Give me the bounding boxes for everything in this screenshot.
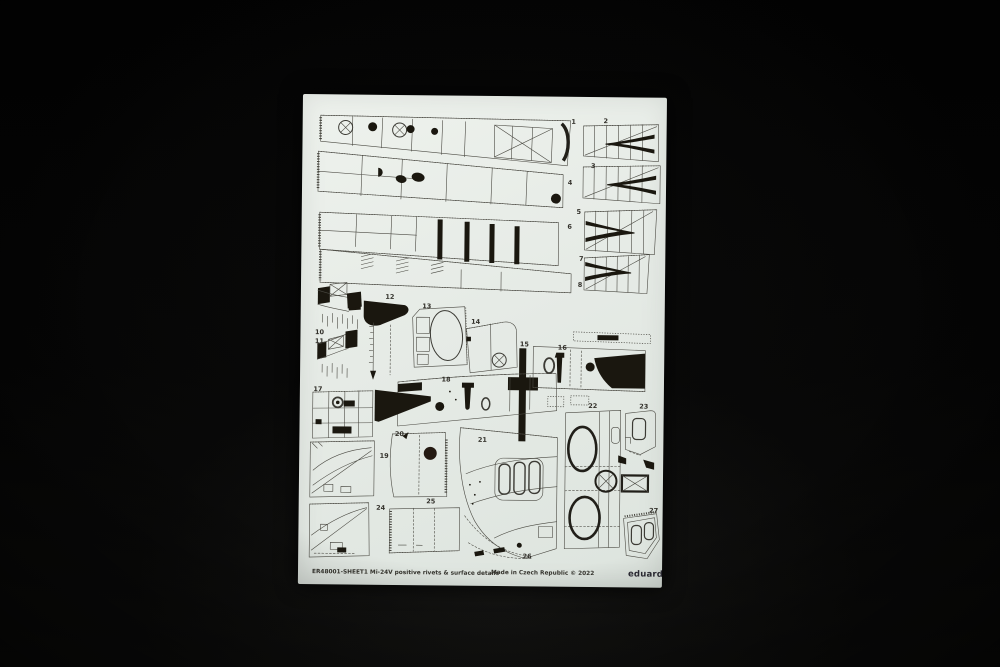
part-number: 5 xyxy=(576,208,581,216)
part-7-drawing xyxy=(584,254,649,294)
part-number: 19 xyxy=(380,452,390,460)
part-number: 21 xyxy=(478,436,488,444)
part-number: 18 xyxy=(441,375,451,383)
part-number: 20 xyxy=(395,430,405,438)
part-16-drawing xyxy=(533,331,651,391)
part-8-drawing xyxy=(320,249,571,293)
part-number: 17 xyxy=(313,385,322,393)
part-number: 14 xyxy=(471,318,481,326)
sheet-artwork: 1 2 3 4 5 6 7 8 10 11 12 13 14 15 16 17 … xyxy=(298,94,667,588)
part-number: 10 xyxy=(315,328,325,336)
part-23-drawing xyxy=(625,410,655,455)
part-number: 1 xyxy=(571,118,576,126)
part-number: 12 xyxy=(385,293,394,301)
part-number: 7 xyxy=(579,255,584,263)
part-17-drawing xyxy=(312,390,372,439)
part-number: 4 xyxy=(568,179,573,187)
part-number: 2 xyxy=(603,117,608,125)
part-5-drawing xyxy=(584,209,656,255)
part-number: 13 xyxy=(422,302,431,310)
eduard-logo: eduard xyxy=(628,569,663,579)
part-number: 25 xyxy=(426,497,436,505)
part-20-drawing xyxy=(390,432,448,498)
part-number: 3 xyxy=(591,162,596,170)
made-in-text: Made in Czech Republic © 2022 xyxy=(491,570,594,577)
part-number: 11 xyxy=(315,337,325,345)
part-19-drawing xyxy=(310,440,375,498)
part-2-drawing xyxy=(583,124,658,162)
part-number: 24 xyxy=(376,504,386,512)
part-number: 22 xyxy=(588,402,597,410)
part-number: 6 xyxy=(567,223,572,231)
part-27-drawing xyxy=(623,511,659,558)
sheet-title-text: ER48001-SHEET1 Mi-24V positive rivets & … xyxy=(312,569,500,577)
part-6-drawing xyxy=(319,212,559,265)
part-13-drawing xyxy=(412,306,468,368)
part-25-drawing xyxy=(389,507,459,554)
decal-sheet: 1 2 3 4 5 6 7 8 10 11 12 13 14 15 16 17 … xyxy=(298,94,667,588)
part-3-drawing xyxy=(583,165,660,204)
part-24-drawing xyxy=(309,502,370,558)
part-21-drawing xyxy=(458,428,557,559)
part-number: 27 xyxy=(649,507,658,515)
part-4-drawing xyxy=(318,151,564,208)
part-number: 23 xyxy=(639,403,648,411)
part-number: 26 xyxy=(523,552,533,560)
part-14-drawing xyxy=(466,322,518,374)
small-panel-pieces xyxy=(548,396,589,407)
part-number: 15 xyxy=(520,340,530,348)
part-number: 16 xyxy=(558,344,568,352)
part-number: 8 xyxy=(578,281,583,289)
part-15-drawing xyxy=(507,348,538,441)
sheet-footer: ER48001-SHEET1 Mi-24V positive rivets & … xyxy=(312,566,663,580)
part-1-drawing xyxy=(320,115,570,166)
